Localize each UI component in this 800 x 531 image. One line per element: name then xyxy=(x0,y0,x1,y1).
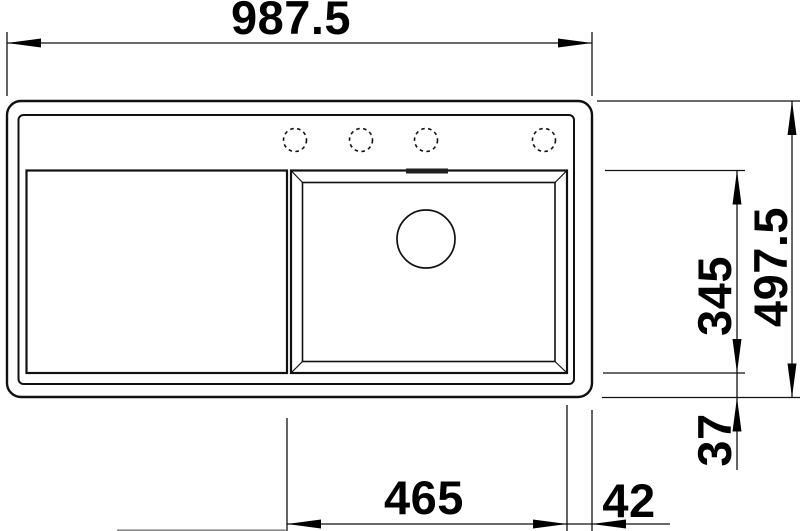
arrow-up-icon xyxy=(733,171,742,205)
overflow-slot-icon xyxy=(406,169,448,174)
dim-label-bowl-depth: 345 xyxy=(688,256,741,336)
arrow-down-icon xyxy=(733,339,742,373)
dim-bowl-bottom-offset: 37 xyxy=(688,398,742,467)
arrow-right-icon xyxy=(533,520,567,529)
arrow-up-icon xyxy=(788,101,797,135)
arrow-left-icon xyxy=(7,39,41,48)
dim-label-bowl-bottom-offset: 37 xyxy=(688,413,741,466)
faucet-holes xyxy=(284,129,556,152)
dim-label-overall-width: 987.5 xyxy=(231,0,351,44)
dim-overall-width: 987.5 xyxy=(7,0,592,96)
dim-label-bowl-width: 465 xyxy=(384,471,464,524)
drain-hole-icon xyxy=(397,210,455,268)
dim-label-overall-depth: 497.5 xyxy=(744,207,797,327)
faucet-hole-icon-2 xyxy=(350,129,373,152)
faucet-hole-icon-4 xyxy=(533,129,556,152)
bowl-chamfer-top-left xyxy=(291,171,303,183)
dim-label-rim-right-width: 42 xyxy=(602,474,655,527)
drainboard xyxy=(27,171,288,374)
arrow-right-icon xyxy=(558,39,592,48)
arrow-down-icon xyxy=(788,364,797,398)
sink-inner-rim xyxy=(19,115,575,384)
sink-outer-rim xyxy=(7,101,592,397)
arrow-left-icon xyxy=(287,520,321,529)
drainboard-area xyxy=(27,171,288,374)
dim-overall-depth: 497.5 xyxy=(597,101,800,398)
technical-drawing: 987.5 497.5 345 37 xyxy=(0,0,800,531)
dim-rim-right-width: 42 xyxy=(592,410,656,531)
faucet-hole-icon-1 xyxy=(284,129,307,152)
sink-outline xyxy=(7,101,592,397)
bowl xyxy=(291,169,567,374)
bowl-chamfer-bottom-left xyxy=(291,362,303,374)
bowl-chamfer-bottom-right xyxy=(555,362,567,374)
faucet-hole-icon-3 xyxy=(415,129,438,152)
bowl-chamfer-top-right xyxy=(555,171,567,183)
bowl-outer-edge xyxy=(291,171,567,374)
sink-dimension-drawing: 987.5 497.5 345 37 xyxy=(0,0,800,531)
